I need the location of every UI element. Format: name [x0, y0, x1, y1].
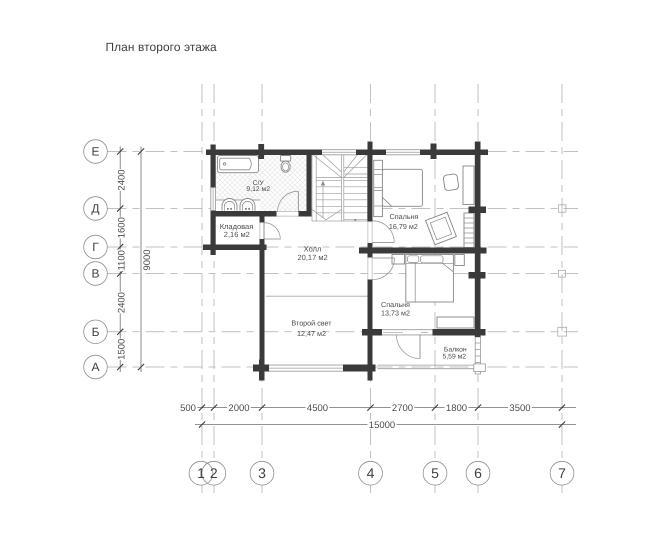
svg-text:3500: 3500 — [509, 403, 530, 414]
svg-text:Спальня: Спальня — [390, 212, 419, 221]
svg-text:7: 7 — [558, 465, 566, 481]
svg-text:Д: Д — [91, 202, 99, 216]
svg-text:20,17 м2: 20,17 м2 — [298, 253, 328, 262]
svg-text:2400: 2400 — [117, 169, 128, 190]
svg-text:1100: 1100 — [117, 250, 128, 270]
svg-text:Балкон: Балкон — [444, 346, 467, 353]
svg-text:2700: 2700 — [392, 403, 413, 414]
svg-text:Второй свет: Второй свет — [291, 318, 332, 327]
svg-text:500: 500 — [180, 403, 196, 414]
svg-text:2,16 м2: 2,16 м2 — [224, 230, 250, 239]
svg-text:2000: 2000 — [228, 403, 249, 414]
svg-text:9,12 м2: 9,12 м2 — [246, 186, 270, 193]
svg-text:4: 4 — [367, 465, 375, 481]
svg-text:6: 6 — [474, 465, 482, 481]
svg-text:5: 5 — [431, 465, 439, 481]
svg-text:15000: 15000 — [369, 420, 395, 431]
svg-text:12,47 м2: 12,47 м2 — [297, 329, 326, 338]
svg-text:1800: 1800 — [446, 403, 467, 414]
svg-text:13,73 м2: 13,73 м2 — [381, 309, 410, 318]
svg-text:4500: 4500 — [307, 403, 328, 414]
svg-text:9000: 9000 — [142, 249, 153, 270]
svg-text:1500: 1500 — [117, 339, 128, 360]
svg-text:3: 3 — [258, 465, 266, 481]
svg-text:Г: Г — [92, 240, 99, 254]
svg-text:А: А — [91, 360, 99, 374]
svg-text:2: 2 — [210, 465, 218, 481]
svg-text:1600: 1600 — [117, 217, 128, 238]
svg-text:1: 1 — [197, 465, 205, 481]
svg-text:Б: Б — [92, 325, 100, 339]
svg-text:5,59 м2: 5,59 м2 — [443, 354, 467, 361]
svg-text:В: В — [91, 267, 99, 281]
svg-text:Е: Е — [91, 145, 99, 159]
svg-text:План второго этажа: План второго этажа — [106, 40, 218, 54]
svg-text:16,79 м2: 16,79 м2 — [389, 222, 418, 231]
svg-text:2400: 2400 — [117, 292, 128, 313]
